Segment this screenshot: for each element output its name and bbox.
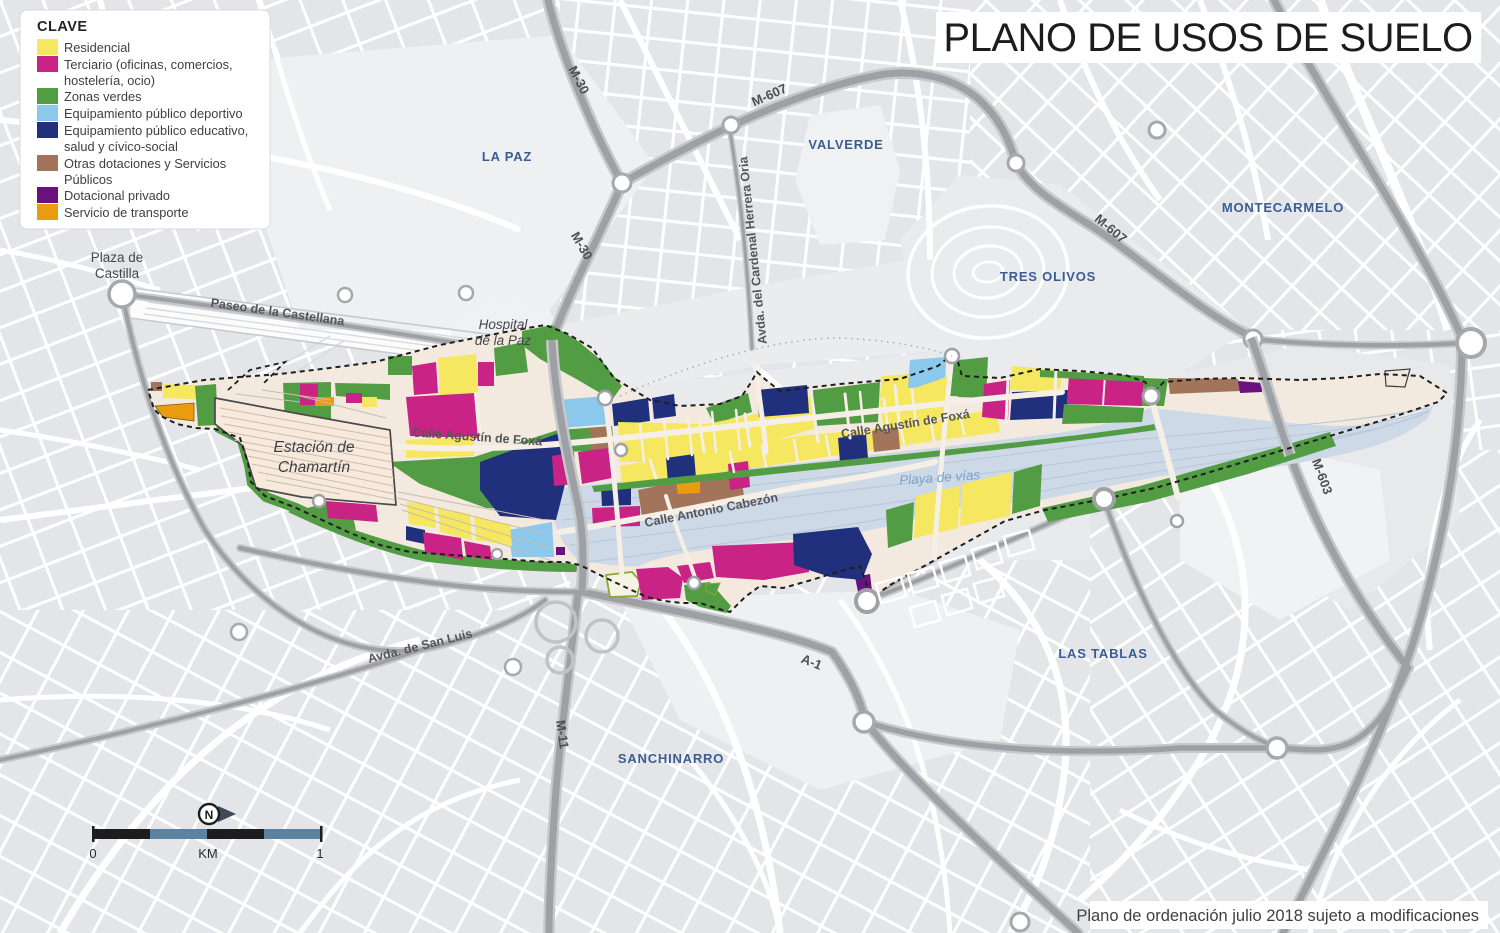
svg-text:KM: KM (198, 846, 218, 861)
svg-text:salud y cívico-social: salud y cívico-social (64, 139, 178, 154)
svg-text:MONTECARMELO: MONTECARMELO (1222, 200, 1344, 215)
svg-text:LA PAZ: LA PAZ (482, 149, 532, 164)
svg-text:hostelería, ocio): hostelería, ocio) (64, 73, 155, 88)
svg-text:0: 0 (89, 846, 96, 861)
svg-text:Servicio de transporte: Servicio de transporte (64, 205, 188, 220)
svg-text:VALVERDE: VALVERDE (808, 137, 883, 152)
svg-text:de la Paz: de la Paz (475, 333, 532, 348)
svg-text:1: 1 (316, 846, 323, 861)
svg-text:Plano de ordenación julio 2018: Plano de ordenación julio 2018 sujeto a … (1076, 907, 1479, 925)
svg-text:Castilla: Castilla (95, 266, 140, 281)
svg-text:LAS TABLAS: LAS TABLAS (1058, 646, 1147, 661)
svg-text:Plaza de: Plaza de (91, 250, 144, 265)
svg-text:CLAVE: CLAVE (37, 19, 88, 35)
svg-text:Estación de: Estación de (274, 439, 355, 456)
svg-text:Chamartín: Chamartín (278, 459, 350, 476)
svg-text:Equipamiento público educativo: Equipamiento público educativo, (64, 123, 248, 138)
svg-text:TRES OLIVOS: TRES OLIVOS (1000, 269, 1096, 284)
svg-text:Dotacional privado: Dotacional privado (64, 188, 170, 203)
svg-text:Residencial: Residencial (64, 40, 130, 55)
svg-text:N: N (205, 808, 214, 822)
svg-text:Públicos: Públicos (64, 172, 112, 187)
svg-text:Hospital: Hospital (479, 317, 529, 332)
svg-text:PLANO DE USOS DE SUELO: PLANO DE USOS DE SUELO (943, 16, 1472, 60)
svg-text:Otras dotaciones y Servicios: Otras dotaciones y Servicios (64, 156, 226, 171)
svg-text:SANCHINARRO: SANCHINARRO (618, 751, 724, 766)
svg-text:Terciario (oficinas, comercios: Terciario (oficinas, comercios, (64, 57, 233, 72)
svg-text:Equipamiento público deportivo: Equipamiento público deportivo (64, 106, 243, 121)
svg-text:Zonas verdes: Zonas verdes (64, 89, 142, 104)
